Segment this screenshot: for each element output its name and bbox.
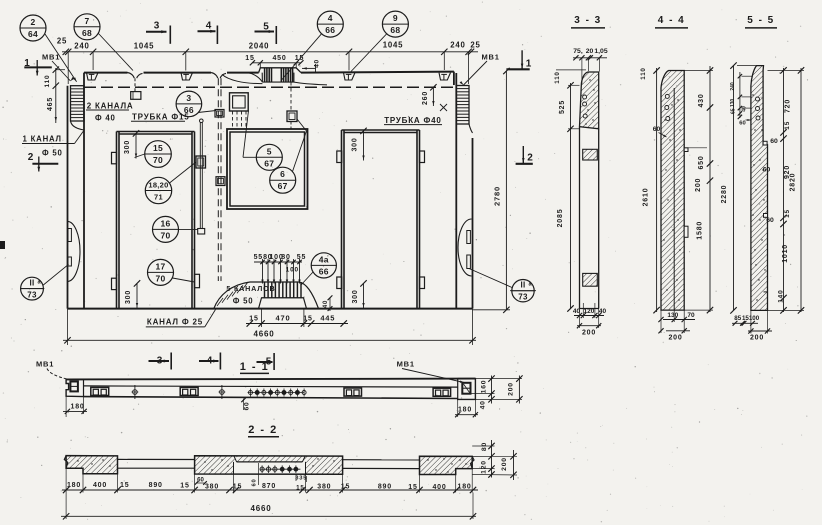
svg-text:260: 260 [422, 91, 429, 105]
svg-text:15: 15 [233, 484, 242, 491]
svg-text:110: 110 [44, 75, 51, 88]
svg-text:15: 15 [180, 483, 189, 490]
svg-text:445: 445 [320, 314, 335, 323]
svg-text:1,05: 1,05 [594, 48, 607, 55]
svg-text:3 - 3: 3 - 3 [574, 15, 602, 26]
svg-text:2085: 2085 [557, 209, 564, 228]
svg-text:40: 40 [314, 59, 321, 68]
svg-text:200: 200 [750, 335, 764, 342]
svg-text:4: 4 [328, 13, 333, 23]
svg-text:60: 60 [197, 478, 204, 484]
svg-text:300: 300 [125, 290, 132, 304]
svg-text:380: 380 [317, 484, 331, 491]
svg-text:55: 55 [254, 254, 263, 261]
svg-text:2 КАНАЛА: 2 КАНАЛА [87, 101, 134, 110]
svg-text:Ф 50: Ф 50 [42, 149, 63, 158]
svg-text:4: 4 [206, 21, 212, 32]
svg-text:60: 60 [739, 121, 745, 127]
svg-text:25: 25 [57, 37, 67, 46]
svg-text:16: 16 [160, 218, 170, 228]
svg-text:Ф 40: Ф 40 [95, 114, 116, 123]
svg-text:200: 200 [501, 457, 508, 471]
svg-text:60: 60 [766, 217, 774, 224]
svg-text:55: 55 [297, 254, 306, 261]
svg-text:1 КАНАЛ: 1 КАНАЛ [23, 135, 62, 144]
svg-text:5 КАНАЛОВ: 5 КАНАЛОВ [226, 284, 275, 293]
svg-text:15: 15 [120, 482, 129, 489]
svg-text:130: 130 [730, 99, 736, 108]
svg-text:II: II [520, 281, 525, 290]
svg-text:120: 120 [480, 460, 487, 474]
svg-text:100: 100 [749, 315, 760, 322]
svg-text:240: 240 [450, 41, 465, 50]
svg-text:335: 335 [295, 476, 307, 482]
svg-text:18,20: 18,20 [148, 181, 168, 190]
svg-text:МВ1: МВ1 [397, 360, 415, 369]
svg-text:75,: 75, [573, 48, 583, 55]
svg-text:МВ1: МВ1 [482, 53, 500, 62]
svg-text:60: 60 [763, 167, 771, 174]
svg-text:2: 2 [28, 152, 34, 163]
svg-text:890: 890 [378, 484, 392, 491]
svg-text:70: 70 [153, 155, 163, 165]
svg-text:110: 110 [554, 71, 561, 83]
svg-text:67: 67 [278, 181, 288, 191]
svg-text:15: 15 [784, 121, 791, 130]
svg-text:870: 870 [262, 483, 276, 490]
svg-text:2: 2 [30, 17, 35, 27]
svg-text:2820: 2820 [789, 173, 796, 192]
svg-text:400: 400 [93, 482, 107, 489]
svg-text:2 - 2: 2 - 2 [248, 424, 278, 436]
svg-text:2610: 2610 [643, 188, 650, 207]
svg-text:20: 20 [586, 48, 594, 55]
svg-text:890: 890 [149, 482, 163, 489]
svg-text:180: 180 [71, 404, 85, 411]
svg-text:1: 1 [526, 59, 532, 70]
svg-text:120: 120 [584, 308, 595, 315]
svg-text:9: 9 [393, 13, 398, 23]
svg-text:60: 60 [770, 138, 778, 145]
svg-text:1580: 1580 [697, 221, 704, 240]
svg-text:25: 25 [470, 41, 480, 50]
svg-text:240: 240 [730, 82, 736, 91]
svg-text:1045: 1045 [383, 41, 404, 50]
svg-text:1045: 1045 [134, 42, 155, 51]
svg-text:180: 180 [67, 482, 81, 489]
svg-text:71: 71 [154, 193, 163, 202]
svg-text:15: 15 [408, 484, 417, 491]
svg-text:68: 68 [82, 28, 92, 38]
svg-text:2: 2 [527, 153, 533, 164]
svg-text:470: 470 [276, 314, 291, 323]
svg-text:73: 73 [518, 293, 528, 302]
svg-text:3: 3 [154, 21, 160, 32]
svg-text:80: 80 [281, 254, 290, 261]
svg-text:5: 5 [267, 146, 272, 156]
svg-text:2040: 2040 [249, 42, 270, 51]
svg-text:240: 240 [74, 42, 89, 51]
svg-text:15: 15 [303, 316, 312, 323]
svg-text:1010: 1010 [782, 244, 789, 263]
svg-text:70: 70 [160, 230, 170, 240]
svg-text:68: 68 [390, 25, 400, 35]
svg-text:40: 40 [480, 400, 487, 409]
svg-text:40: 40 [323, 300, 329, 308]
svg-text:200: 200 [695, 178, 702, 192]
svg-text:650: 650 [698, 155, 705, 169]
svg-text:15: 15 [249, 316, 258, 323]
svg-text:40: 40 [742, 106, 748, 112]
svg-text:200: 200 [668, 335, 682, 342]
svg-text:6: 6 [280, 169, 285, 179]
svg-text:66: 66 [319, 266, 329, 276]
svg-text:МВ1: МВ1 [36, 360, 54, 369]
svg-text:15: 15 [784, 209, 791, 218]
svg-text:60: 60 [252, 478, 258, 486]
svg-text:85: 85 [734, 315, 741, 322]
svg-text:1 - 1: 1 - 1 [240, 361, 270, 373]
svg-text:400: 400 [432, 484, 446, 491]
svg-text:180: 180 [458, 407, 472, 414]
svg-text:2780: 2780 [493, 186, 502, 206]
svg-text:160: 160 [480, 380, 487, 394]
svg-text:40: 40 [599, 308, 607, 315]
svg-text:65: 65 [731, 108, 737, 114]
svg-text:15: 15 [296, 485, 304, 492]
svg-text:80: 80 [481, 442, 488, 451]
svg-text:4660: 4660 [254, 330, 275, 339]
svg-text:7: 7 [84, 16, 89, 26]
svg-text:450: 450 [272, 55, 286, 62]
svg-text:720: 720 [785, 99, 792, 113]
svg-text:70: 70 [687, 312, 695, 319]
svg-text:66: 66 [325, 25, 335, 35]
svg-text:15: 15 [153, 143, 163, 153]
svg-text:4660: 4660 [251, 504, 272, 513]
svg-text:2280: 2280 [721, 185, 728, 204]
svg-text:300: 300 [124, 140, 131, 154]
svg-text:465: 465 [47, 97, 54, 111]
svg-text:4 - 4: 4 - 4 [658, 15, 686, 26]
svg-text:70: 70 [155, 273, 165, 283]
svg-text:300: 300 [352, 137, 359, 151]
svg-text:МВ1: МВ1 [42, 53, 60, 62]
svg-text:15: 15 [245, 55, 254, 62]
svg-text:140: 140 [777, 289, 784, 302]
svg-text:180: 180 [458, 484, 472, 491]
svg-text:110: 110 [640, 67, 647, 79]
svg-text:64: 64 [28, 29, 38, 39]
svg-text:200: 200 [508, 382, 515, 396]
svg-text:17: 17 [155, 261, 165, 271]
svg-text:КАНАЛ Ф 25: КАНАЛ Ф 25 [147, 318, 203, 327]
svg-text:130: 130 [667, 312, 678, 319]
svg-text:300: 300 [352, 289, 359, 303]
svg-text:ТРУБКА Ф40: ТРУБКА Ф40 [384, 116, 441, 125]
svg-text:15: 15 [341, 484, 350, 491]
svg-text:200: 200 [582, 330, 596, 337]
svg-text:II: II [29, 279, 34, 288]
svg-text:525: 525 [559, 100, 566, 114]
svg-text:380: 380 [205, 484, 219, 491]
svg-text:430: 430 [698, 93, 705, 107]
svg-text:60: 60 [244, 402, 251, 411]
svg-text:66: 66 [184, 105, 194, 115]
svg-text:3: 3 [186, 93, 191, 103]
svg-text:5 - 5: 5 - 5 [747, 15, 775, 26]
svg-text:100: 100 [286, 267, 299, 274]
svg-text:Ф 50: Ф 50 [233, 297, 254, 306]
svg-text:67: 67 [264, 158, 274, 168]
